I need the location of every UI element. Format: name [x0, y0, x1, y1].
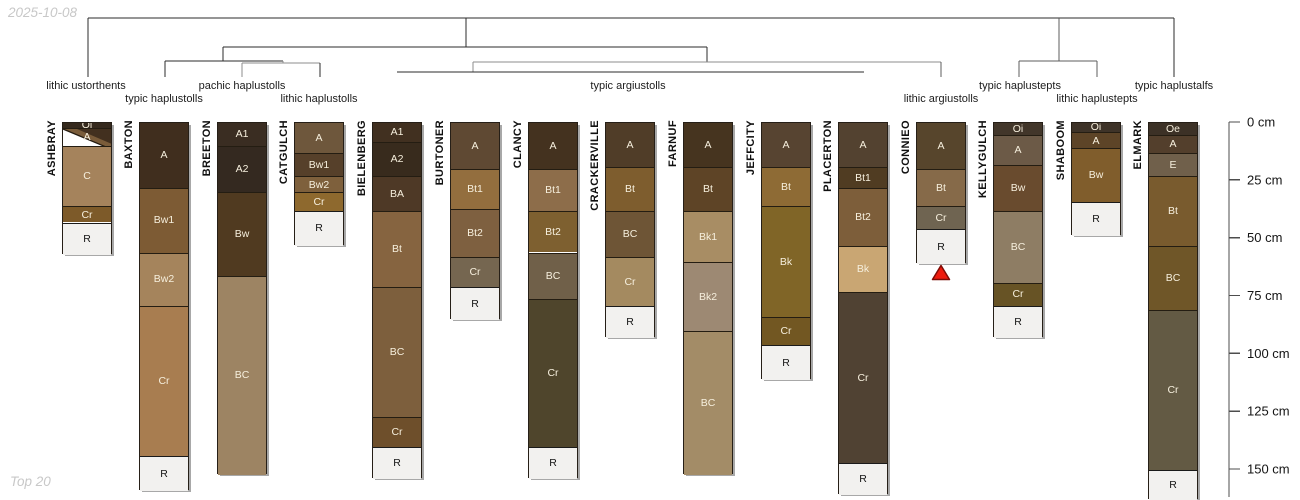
horizon-label: Cr — [547, 368, 558, 379]
horizon-BAXTON-Bw1: Bw1 — [140, 188, 188, 253]
horizon-CLANCY-Cr: Cr — [529, 299, 577, 447]
horizon-JEFFCITY-A: A — [762, 123, 810, 167]
taxon-label-typic-haplustalfs: typic haplustalfs — [1135, 80, 1213, 92]
horizon-CLANCY-A: A — [529, 123, 577, 169]
taxon-label-lithic-argiustolls: lithic argiustolls — [904, 93, 979, 105]
horizon-CLANCY-R: R — [529, 447, 577, 479]
horizon-label: Oi — [82, 123, 93, 128]
profile-column-CRACKERVILLE: ABtBCCrR — [605, 122, 655, 337]
horizon-CATGULCH-Bw1: Bw1 — [295, 153, 343, 176]
horizon-label: Bt — [392, 244, 402, 255]
horizon-label: BC — [390, 347, 405, 358]
horizon-CATGULCH-A: A — [295, 123, 343, 153]
horizon-label: R — [83, 234, 91, 245]
horizon-label: Oi — [1013, 124, 1024, 135]
footer-watermark: Top 20 — [10, 474, 51, 489]
horizon-BAXTON-Bw2: Bw2 — [140, 253, 188, 306]
horizon-CLANCY-Bt1: Bt1 — [529, 169, 577, 211]
horizon-BIELENBERG-R: R — [373, 447, 421, 479]
profile-name-ASHBRAY: ASHBRAY — [46, 120, 58, 176]
profile-column-FARNUF: ABtBk1Bk2BC — [683, 122, 733, 474]
horizon-FARNUF-Bk2: Bk2 — [684, 262, 732, 331]
horizon-CRACKERVILLE-BC: BC — [606, 211, 654, 257]
horizon-label: A — [160, 150, 167, 161]
horizon-BURTONER-R: R — [451, 287, 499, 319]
taxon-label-typic-haplustolls: typic haplustolls — [125, 93, 203, 105]
horizon-label: Bw1 — [309, 160, 329, 171]
profile-column-CATGULCH: ABw1Bw2CrR — [294, 122, 344, 245]
horizon-label: Bw — [235, 229, 250, 240]
horizon-label: A2 — [391, 154, 404, 165]
horizon-BAXTON-R: R — [140, 456, 188, 491]
depth-axis-tick-label: 0 cm — [1247, 115, 1275, 130]
horizon-label: Cr — [935, 213, 946, 224]
horizon-BIELENBERG-A2: A2 — [373, 142, 421, 177]
horizon-label: R — [315, 223, 323, 234]
horizon-BAXTON-Cr: Cr — [140, 306, 188, 456]
horizon-JEFFCITY-Bk: Bk — [762, 206, 810, 317]
horizon-CLANCY-Bt2: Bt2 — [529, 211, 577, 253]
horizon-BURTONER-Bt2: Bt2 — [451, 209, 499, 258]
horizon-label: R — [1092, 214, 1100, 225]
taxon-label-typic-argiustolls: typic argiustolls — [590, 80, 665, 92]
horizon-CATGULCH-Cr: Cr — [295, 192, 343, 211]
horizon-BIELENBERG-A1: A1 — [373, 123, 421, 142]
horizon-BURTONER-Bt1: Bt1 — [451, 169, 499, 208]
horizon-label: R — [859, 474, 867, 485]
soil-profile-plot: 2025-10-08 Top 20 lithic ustorthentstypi… — [0, 0, 1300, 500]
depth-axis-tick-label: 150 cm — [1247, 461, 1290, 476]
horizon-label: Bw2 — [154, 274, 174, 285]
profile-column-ELMARK: OeAEBtBCCrR — [1148, 122, 1198, 499]
horizon-BREETON-A2: A2 — [218, 146, 266, 192]
horizon-label: A1 — [391, 127, 404, 138]
profile-name-CRACKERVILLE: CRACKERVILLE — [589, 120, 601, 211]
horizon-BIELENBERG-Bt: Bt — [373, 211, 421, 287]
horizon-BIELENBERG-BC: BC — [373, 287, 421, 417]
horizon-ELMARK-BC: BC — [1149, 246, 1197, 311]
profile-column-PLACERTON: ABt1Bt2BkCrR — [838, 122, 888, 494]
horizon-CRACKERVILLE-R: R — [606, 306, 654, 338]
depth-axis-tick-label: 50 cm — [1247, 230, 1282, 245]
horizon-label: Bw — [1011, 183, 1026, 194]
horizon-KELLYGULCH-R: R — [994, 306, 1042, 338]
horizon-label: R — [1014, 317, 1022, 328]
horizon-CATGULCH-Bw2: Bw2 — [295, 176, 343, 192]
horizon-label: A — [937, 141, 944, 152]
profile-name-CONNIEO: CONNIEO — [900, 120, 912, 174]
horizon-ELMARK-Oe: Oe — [1149, 123, 1197, 135]
horizon-label: Bw — [1089, 170, 1104, 181]
horizon-PLACERTON-Bk: Bk — [839, 246, 887, 292]
horizon-label: A — [859, 140, 866, 151]
horizon-label: R — [626, 317, 634, 328]
horizon-KELLYGULCH-Bw: Bw — [994, 165, 1042, 211]
profile-name-FARNUF: FARNUF — [667, 120, 679, 167]
profile-name-BAXTON: BAXTON — [123, 120, 135, 169]
taxon-label-lithic-haplustolls: lithic haplustolls — [280, 93, 357, 105]
horizon-label: Bt — [781, 182, 791, 193]
horizon-label: A — [626, 140, 633, 151]
depth-axis-tick-label: 100 cm — [1247, 346, 1290, 361]
profile-name-BURTONER: BURTONER — [434, 120, 446, 185]
horizon-KELLYGULCH-Cr: Cr — [994, 283, 1042, 306]
horizon-label: Bt — [703, 184, 713, 195]
horizon-KELLYGULCH-A: A — [994, 135, 1042, 165]
horizon-PLACERTON-R: R — [839, 463, 887, 495]
horizon-label: Bk — [780, 257, 792, 268]
horizon-label: A — [782, 140, 789, 151]
horizon-JEFFCITY-Cr: Cr — [762, 317, 810, 345]
horizon-label: A1 — [236, 129, 249, 140]
horizon-label: BC — [1011, 242, 1026, 253]
horizon-CLANCY-BC: BC — [529, 253, 577, 299]
horizon-label: Bk — [857, 264, 869, 275]
horizon-label: R — [160, 469, 168, 480]
profile-name-CATGULCH: CATGULCH — [278, 120, 290, 184]
horizon-label: BC — [546, 271, 561, 282]
horizon-label: A — [1014, 145, 1021, 156]
profile-name-CLANCY: CLANCY — [512, 120, 524, 168]
horizon-FARNUF-A: A — [684, 123, 732, 167]
profile-column-CONNIEO: ABtCrR — [916, 122, 966, 263]
horizon-label: Cr — [1167, 385, 1178, 396]
horizon-label: R — [471, 299, 479, 310]
horizon-SHABOOM-Bw: Bw — [1072, 148, 1120, 201]
horizon-ELMARK-A: A — [1149, 135, 1197, 154]
profile-name-JEFFCITY: JEFFCITY — [745, 120, 757, 175]
profile-column-BURTONER: ABt1Bt2CrR — [450, 122, 500, 319]
horizon-ELMARK-E: E — [1149, 153, 1197, 176]
horizon-BREETON-Bw: Bw — [218, 192, 266, 275]
depth-axis-tick-label: 75 cm — [1247, 288, 1282, 303]
profile-column-BREETON: A1A2BwBC — [217, 122, 267, 474]
horizon-FARNUF-Bk1: Bk1 — [684, 211, 732, 262]
horizon-label: R — [393, 458, 401, 469]
horizon-label: R — [1169, 480, 1177, 491]
horizon-label: Cr — [469, 267, 480, 278]
horizon-label: Bt2 — [467, 228, 483, 239]
horizon-ASHBRAY-Cr: Cr — [63, 206, 111, 222]
horizon-CRACKERVILLE-A: A — [606, 123, 654, 167]
horizon-SHABOOM-A: A — [1072, 132, 1120, 148]
horizon-label: Bk1 — [699, 232, 717, 243]
horizon-BIELENBERG-Cr: Cr — [373, 417, 421, 447]
horizon-label: Cr — [780, 326, 791, 337]
profile-name-ELMARK: ELMARK — [1132, 120, 1144, 169]
horizon-label: Bt2 — [545, 227, 561, 238]
horizon-label: A — [315, 133, 322, 144]
horizon-label: Oe — [1166, 124, 1180, 135]
profile-column-ASHBRAY: OiACCrR — [62, 122, 112, 254]
horizon-SHABOOM-Oi: Oi — [1072, 123, 1120, 132]
marker-triangle-icon — [933, 266, 950, 280]
horizon-label: Bk2 — [699, 292, 717, 303]
horizon-label: A — [1169, 139, 1176, 150]
horizon-label: BA — [390, 189, 404, 200]
horizon-label: Cr — [857, 373, 868, 384]
horizon-FARNUF-Bt: Bt — [684, 167, 732, 211]
horizon-KELLYGULCH-BC: BC — [994, 211, 1042, 283]
depth-axis-tick-label: 25 cm — [1247, 172, 1282, 187]
horizon-label: C — [83, 171, 91, 182]
profile-column-KELLYGULCH: OiABwBCCrR — [993, 122, 1043, 337]
horizon-label: Bw1 — [154, 215, 174, 226]
horizon-BAXTON-A: A — [140, 123, 188, 188]
profile-name-SHABOOM: SHABOOM — [1055, 120, 1067, 180]
profile-column-BIELENBERG: A1A2BABtBCCrR — [372, 122, 422, 478]
horizon-PLACERTON-Bt1: Bt1 — [839, 167, 887, 188]
horizon-CATGULCH-R: R — [295, 211, 343, 246]
horizon-label: BC — [1166, 273, 1181, 284]
horizon-BURTONER-Cr: Cr — [451, 257, 499, 287]
horizon-label: Cr — [158, 376, 169, 387]
profile-name-KELLYGULCH: KELLYGULCH — [977, 120, 989, 198]
horizon-ASHBRAY-R: R — [63, 223, 111, 255]
horizon-label: Cr — [81, 210, 92, 221]
horizon-label: A — [704, 140, 711, 151]
horizon-label: BC — [235, 370, 250, 381]
horizon-CONNIEO-Bt: Bt — [917, 169, 965, 206]
horizon-JEFFCITY-Bt: Bt — [762, 167, 810, 206]
horizon-label: Bt — [625, 184, 635, 195]
profile-name-BREETON: BREETON — [201, 120, 213, 176]
taxon-label-pachic-haplustolls: pachic haplustolls — [199, 80, 286, 92]
profile-name-BIELENBERG: BIELENBERG — [356, 120, 368, 196]
taxon-label-lithic-haplustepts: lithic haplustepts — [1056, 93, 1137, 105]
horizon-ELMARK-R: R — [1149, 470, 1197, 500]
horizon-label: BC — [623, 229, 638, 240]
horizon-label: E — [1169, 160, 1176, 171]
horizon-FARNUF-BC: BC — [684, 331, 732, 474]
horizon-CONNIEO-Cr: Cr — [917, 206, 965, 229]
horizon-label: Bt2 — [855, 212, 871, 223]
horizon-label: BC — [701, 398, 716, 409]
horizon-label: Bt — [1168, 206, 1178, 217]
profile-name-PLACERTON: PLACERTON — [822, 120, 834, 192]
horizon-PLACERTON-A: A — [839, 123, 887, 167]
horizon-label: A — [471, 141, 478, 152]
horizon-ELMARK-Cr: Cr — [1149, 310, 1197, 470]
horizon-label: Cr — [391, 427, 402, 438]
horizon-label: Bw2 — [309, 180, 329, 191]
taxon-label-typic-haplustepts: typic haplustepts — [979, 80, 1061, 92]
horizon-JEFFCITY-R: R — [762, 345, 810, 380]
horizon-label: Cr — [313, 197, 324, 208]
horizon-PLACERTON-Bt2: Bt2 — [839, 188, 887, 246]
horizon-BURTONER-A: A — [451, 123, 499, 169]
horizon-CRACKERVILLE-Bt: Bt — [606, 167, 654, 211]
horizon-SHABOOM-R: R — [1072, 202, 1120, 237]
profile-column-CLANCY: ABt1Bt2BCCrR — [528, 122, 578, 478]
horizon-CONNIEO-R: R — [917, 229, 965, 264]
horizon-label: Bt1 — [545, 185, 561, 196]
horizon-CONNIEO-A: A — [917, 123, 965, 169]
horizon-label: R — [937, 242, 945, 253]
taxon-label-lithic-ustorthents: lithic ustorthents — [46, 80, 125, 92]
horizon-BIELENBERG-BA: BA — [373, 176, 421, 211]
horizon-label: A — [549, 141, 556, 152]
profile-column-SHABOOM: OiABwR — [1071, 122, 1121, 235]
horizon-ASHBRAY-C: C — [63, 146, 111, 206]
horizon-label: Bt1 — [855, 173, 871, 184]
horizon-KELLYGULCH-Oi: Oi — [994, 123, 1042, 135]
horizon-label: Bt1 — [467, 184, 483, 195]
horizon-BREETON-BC: BC — [218, 276, 266, 475]
horizon-ELMARK-Bt: Bt — [1149, 176, 1197, 245]
horizon-label: R — [549, 458, 557, 469]
horizon-label: Cr — [1012, 289, 1023, 300]
profile-column-JEFFCITY: ABtBkCrR — [761, 122, 811, 379]
horizon-label: A — [83, 132, 90, 143]
horizon-label: R — [782, 358, 790, 369]
profile-column-BAXTON: ABw1Bw2CrR — [139, 122, 189, 490]
horizon-label: A2 — [236, 164, 249, 175]
depth-axis-tick-label: 125 cm — [1247, 404, 1290, 419]
horizon-label: Bt — [936, 183, 946, 194]
horizon-BREETON-A1: A1 — [218, 123, 266, 146]
date-watermark: 2025-10-08 — [8, 5, 77, 20]
horizon-label: Oi — [1091, 123, 1102, 132]
horizon-label: Cr — [624, 277, 635, 288]
horizon-label: A — [1092, 136, 1099, 147]
horizon-PLACERTON-Cr: Cr — [839, 292, 887, 463]
horizon-CRACKERVILLE-Cr: Cr — [606, 257, 654, 306]
horizon-ASHBRAY-A: A — [63, 128, 111, 147]
